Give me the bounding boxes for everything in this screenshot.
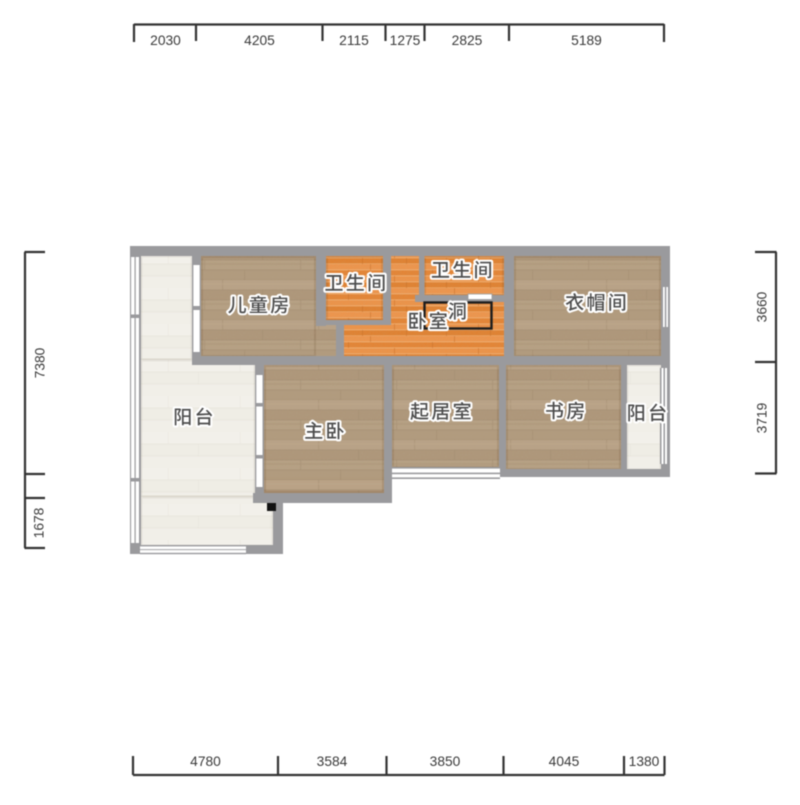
svg-text:4045: 4045: [549, 754, 580, 769]
svg-text:3660: 3660: [755, 291, 770, 322]
svg-text:3719: 3719: [755, 402, 770, 433]
svg-text:2030: 2030: [150, 33, 181, 48]
svg-text:1275: 1275: [390, 33, 421, 48]
svg-text:1380: 1380: [629, 754, 660, 769]
svg-text:3850: 3850: [430, 754, 461, 769]
svg-text:4780: 4780: [190, 754, 221, 769]
svg-text:1678: 1678: [32, 507, 47, 538]
svg-text:5189: 5189: [571, 33, 602, 48]
svg-text:3584: 3584: [317, 754, 348, 769]
svg-text:2825: 2825: [452, 33, 483, 48]
svg-text:2115: 2115: [339, 33, 369, 48]
svg-text:7380: 7380: [33, 347, 48, 378]
svg-text:4205: 4205: [244, 33, 275, 48]
